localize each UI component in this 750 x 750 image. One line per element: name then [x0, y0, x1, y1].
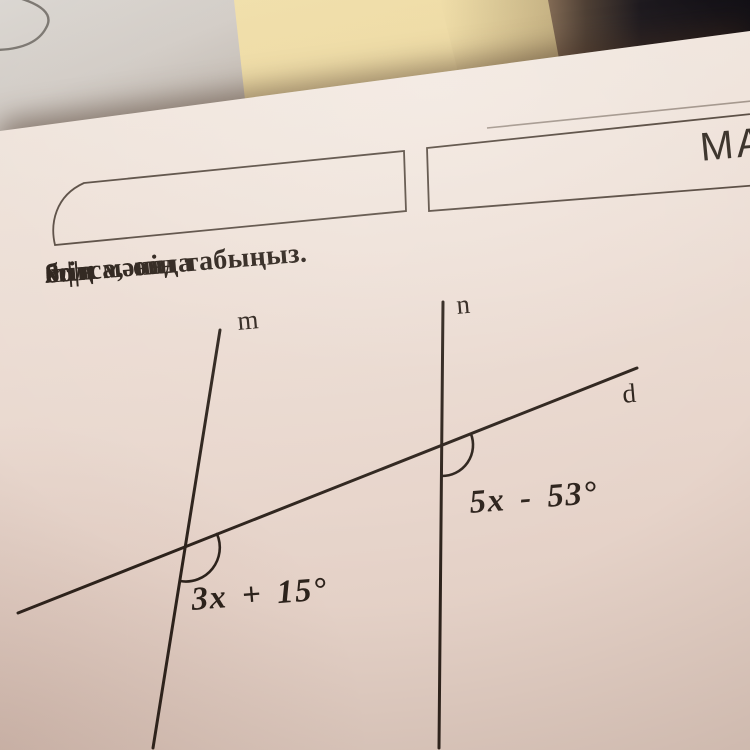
line-m-label: m — [236, 304, 260, 337]
line-n — [439, 302, 443, 748]
page-header-partial-text: МА — [698, 120, 750, 171]
transversal-d-label: d — [621, 378, 637, 410]
answer-box-left — [53, 151, 406, 245]
line-n-label: n — [455, 289, 471, 321]
worksheet-photo: МА 8.m||nболса, ондаx-тің мәнін табыңыз.… — [0, 0, 750, 750]
printed-marks — [0, 0, 750, 750]
line-m — [153, 330, 220, 748]
